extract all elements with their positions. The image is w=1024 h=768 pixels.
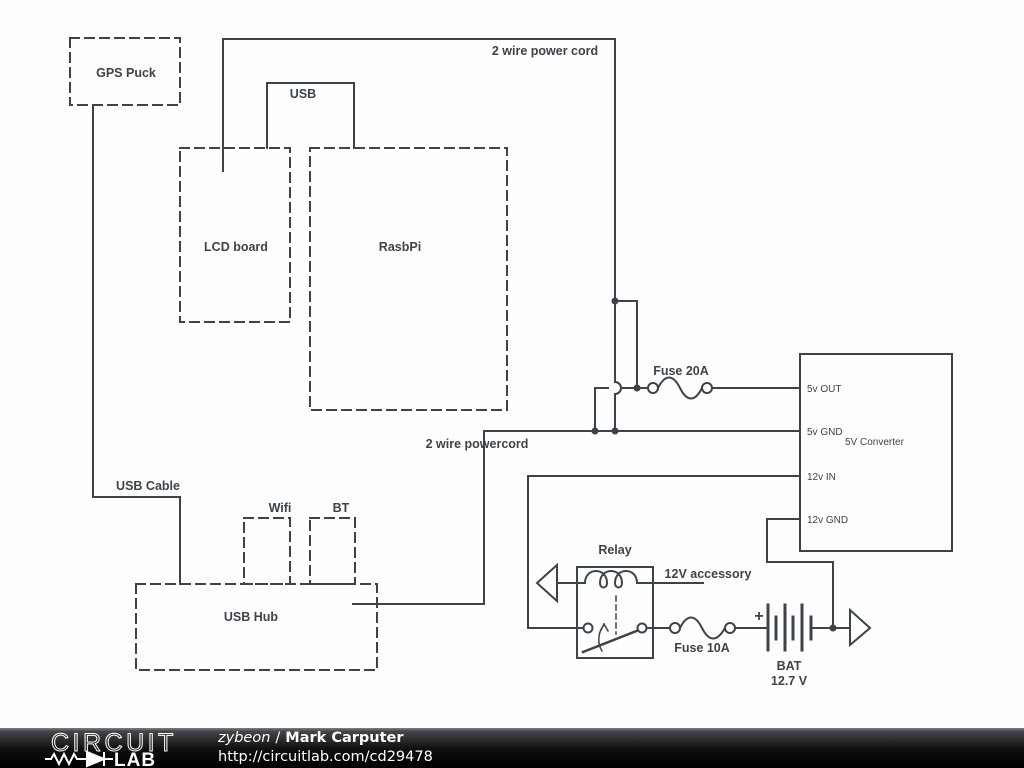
- port-arrow-left-icon: [537, 565, 557, 601]
- fuse-10a-terminal: [670, 623, 680, 633]
- relay-actuate-arrow: [599, 624, 608, 651]
- wire-fuse20-left: [595, 388, 608, 431]
- wire-usb-cable: [93, 105, 180, 584]
- fuse-20a-squiggle: [658, 378, 702, 399]
- footer-meta: zybeon/Mark Carputer http://circuitlab.c…: [218, 729, 433, 766]
- label-power-cord-top: 2 wire power cord: [492, 44, 598, 58]
- rasbpi-box: [310, 148, 507, 410]
- label-powercord-mid: 2 wire powercord: [426, 437, 529, 451]
- relay-contact: [638, 624, 647, 633]
- battery-symbol: [768, 605, 811, 650]
- junction-dot: [830, 625, 837, 632]
- usb-hub-box: [136, 584, 377, 670]
- footer-bar: CIRCUIT LAB zybeon/Mark Carputer http://…: [0, 728, 1024, 768]
- wifi-box: [244, 518, 290, 584]
- label-bt: BT: [333, 501, 350, 515]
- label-12v-accessory: 12V accessory: [665, 567, 752, 581]
- bt-box: [310, 518, 355, 584]
- relay-coil: [585, 571, 637, 588]
- label-5v-converter: 5V Converter: [845, 437, 905, 448]
- schematic-page: GPS Puck 2 wire power cord USB LCD board…: [0, 0, 1024, 768]
- label-relay: Relay: [598, 543, 631, 557]
- logo-brand-bottom: LAB: [114, 750, 156, 768]
- label-bat: BAT: [777, 659, 802, 673]
- circuitlab-logo: CIRCUIT LAB: [42, 730, 202, 768]
- byline-separator: /: [275, 730, 280, 746]
- port-arrow-right-icon: [850, 610, 870, 645]
- fuse-10a-terminal: [725, 623, 735, 633]
- label-wifi: Wifi: [269, 501, 292, 515]
- fuse-10a-squiggle: [680, 618, 725, 639]
- lcd-board-box: [180, 148, 290, 322]
- fuse-20a-symbol: [648, 378, 712, 399]
- relay-blade: [583, 630, 639, 652]
- label-rasbpi: RasbPi: [379, 240, 421, 254]
- junction-dot: [592, 428, 599, 435]
- wire-12v-in: [528, 476, 800, 628]
- relay-symbol: [583, 571, 647, 652]
- wire-fuse20-branch: [615, 301, 637, 388]
- converter-pin-5v-out: 5v OUT: [807, 384, 841, 395]
- author-name: zybeon: [218, 730, 270, 746]
- label-usb: USB: [290, 87, 316, 101]
- label-lcd-board: LCD board: [204, 240, 268, 254]
- wire-hop: [615, 382, 621, 394]
- schematic-title: Mark Carputer: [285, 730, 403, 746]
- converter-pin-12v-in: 12v IN: [807, 472, 836, 483]
- converter-pin-12v-gnd: 12v GND: [807, 515, 848, 526]
- fuse-20a-terminal: [702, 383, 712, 393]
- junction-dot: [612, 298, 619, 305]
- fuse-10a-symbol: [670, 618, 735, 639]
- label-bat-voltage: 12.7 V: [771, 674, 808, 688]
- junction-dot: [612, 428, 619, 435]
- schematic-canvas: GPS Puck 2 wire power cord USB LCD board…: [0, 0, 1024, 728]
- label-fuse-20a: Fuse 20A: [653, 364, 709, 378]
- schematic-byline: zybeon/Mark Carputer: [218, 729, 433, 748]
- schematic-url: http://circuitlab.com/cd29478: [218, 748, 433, 766]
- label-usb-hub: USB Hub: [224, 610, 279, 624]
- junction-dot: [634, 385, 641, 392]
- battery-plus-sign: +: [754, 608, 763, 625]
- fuse-20a-terminal: [648, 383, 658, 393]
- label-usb-cable: USB Cable: [116, 479, 180, 493]
- converter-pin-5v-gnd: 5v GND: [807, 427, 843, 438]
- label-gps-puck: GPS Puck: [96, 66, 156, 80]
- label-fuse-10a: Fuse 10A: [674, 641, 730, 655]
- relay-contact: [584, 624, 593, 633]
- wire-power-cord-top: [223, 39, 615, 382]
